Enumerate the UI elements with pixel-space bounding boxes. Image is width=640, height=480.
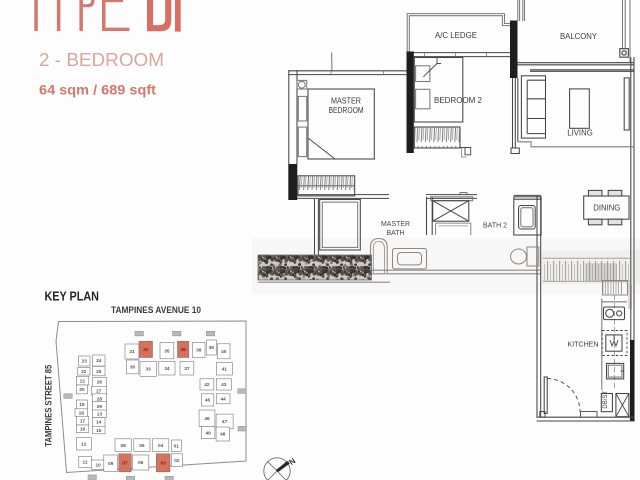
svg-text:64 sqm / 689 sqft: 64 sqm / 689 sqft <box>39 82 156 98</box>
svg-text:02: 02 <box>174 458 180 464</box>
svg-text:40: 40 <box>221 349 227 355</box>
svg-text:16: 16 <box>80 426 86 432</box>
svg-text:24: 24 <box>96 358 102 364</box>
svg-text:LIVING: LIVING <box>567 129 593 138</box>
svg-text:35: 35 <box>164 348 170 354</box>
svg-text:05: 05 <box>139 443 145 449</box>
svg-text:18: 18 <box>79 410 85 416</box>
svg-text:42: 42 <box>204 382 210 388</box>
svg-text:43: 43 <box>221 382 227 388</box>
svg-text:46: 46 <box>204 416 210 422</box>
svg-text:01: 01 <box>174 443 180 449</box>
svg-text:26: 26 <box>97 380 103 386</box>
svg-text:KITCHEN: KITCHEN <box>568 340 599 349</box>
svg-text:07: 07 <box>122 461 128 467</box>
svg-text:04: 04 <box>158 443 164 449</box>
svg-text:34: 34 <box>164 366 170 372</box>
svg-text:44: 44 <box>220 397 226 403</box>
svg-text:DINING: DINING <box>593 204 620 213</box>
svg-text:32: 32 <box>143 347 149 353</box>
svg-text:37: 37 <box>184 366 190 372</box>
svg-text:11: 11 <box>83 460 88 466</box>
svg-text:38: 38 <box>196 348 202 354</box>
svg-text:TAMPINES AVENUE 10: TAMPINES AVENUE 10 <box>111 305 201 315</box>
svg-text:08: 08 <box>120 443 126 449</box>
svg-text:31: 31 <box>129 349 135 355</box>
svg-text:27: 27 <box>96 388 102 394</box>
svg-text:2 - BEDROOM: 2 - BEDROOM <box>39 50 164 70</box>
svg-text:MASTER: MASTER <box>381 219 410 228</box>
svg-text:39: 39 <box>209 345 215 351</box>
svg-text:A/C LEDGE: A/C LEDGE <box>435 31 477 40</box>
svg-text:49: 49 <box>205 430 211 436</box>
svg-text:41: 41 <box>222 366 228 372</box>
svg-text:14: 14 <box>96 420 102 426</box>
svg-text:BEDROOM 2: BEDROOM 2 <box>434 96 483 105</box>
svg-text:BATH 2: BATH 2 <box>483 221 507 230</box>
svg-text:06: 06 <box>138 460 144 466</box>
svg-text:45: 45 <box>205 398 211 404</box>
svg-text:KEY PLAN: KEY PLAN <box>45 289 100 304</box>
svg-text:30: 30 <box>130 365 136 371</box>
svg-text:BATH: BATH <box>387 228 405 237</box>
svg-text:15: 15 <box>96 428 102 434</box>
svg-text:21: 21 <box>80 378 86 384</box>
svg-text:19: 19 <box>79 402 85 408</box>
svg-text:BALCONY: BALCONY <box>560 32 598 41</box>
svg-text:BEDROOM: BEDROOM <box>329 106 364 115</box>
svg-text:25: 25 <box>96 369 102 375</box>
svg-text:TAMPINES STREET 85: TAMPINES STREET 85 <box>44 365 54 447</box>
svg-text:DB/ST: DB/ST <box>603 391 609 409</box>
svg-text:47: 47 <box>222 419 228 425</box>
svg-text:33: 33 <box>145 367 151 373</box>
svg-text:12: 12 <box>81 441 87 447</box>
svg-text:36: 36 <box>180 347 186 353</box>
svg-text:23: 23 <box>82 359 88 365</box>
svg-text:10: 10 <box>95 462 101 468</box>
svg-text:MASTER: MASTER <box>331 97 361 106</box>
svg-text:17: 17 <box>80 418 86 424</box>
svg-text:03: 03 <box>160 461 166 467</box>
svg-text:20: 20 <box>79 387 85 393</box>
svg-text:13: 13 <box>97 411 103 417</box>
svg-text:48: 48 <box>220 432 226 438</box>
svg-text:29: 29 <box>97 404 103 410</box>
svg-text:09: 09 <box>108 461 114 467</box>
svg-text:22: 22 <box>81 369 87 375</box>
